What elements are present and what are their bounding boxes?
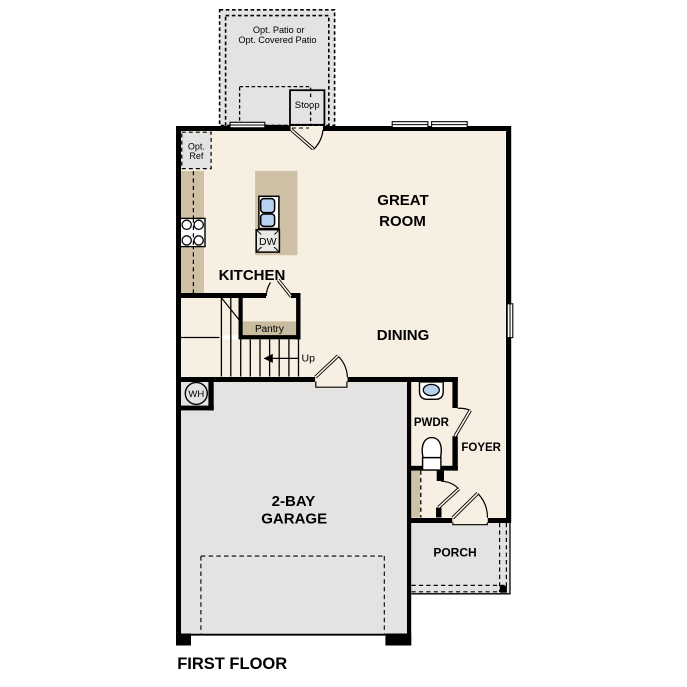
svg-text:GREAT: GREAT <box>377 192 428 209</box>
svg-text:Opt. Covered Patio: Opt. Covered Patio <box>238 35 316 45</box>
svg-text:DINING: DINING <box>377 327 430 344</box>
svg-text:PORCH: PORCH <box>433 546 476 560</box>
svg-text:KITCHEN: KITCHEN <box>219 267 286 284</box>
svg-text:Pantry: Pantry <box>255 324 284 335</box>
svg-text:ROOM: ROOM <box>379 213 426 230</box>
svg-text:Stoop: Stoop <box>295 100 320 111</box>
svg-text:GARAGE: GARAGE <box>261 510 327 527</box>
svg-text:PWDR: PWDR <box>414 417 450 429</box>
svg-text:FIRST FLOOR: FIRST FLOOR <box>177 655 287 673</box>
svg-text:FOYER: FOYER <box>461 442 501 454</box>
svg-text:WH: WH <box>188 389 204 400</box>
svg-text:Ref: Ref <box>189 151 204 161</box>
svg-text:2-BAY: 2-BAY <box>272 493 316 510</box>
svg-text:Opt.: Opt. <box>188 141 205 151</box>
svg-text:Opt. Patio or: Opt. Patio or <box>253 25 305 35</box>
svg-text:Up: Up <box>302 353 316 365</box>
svg-text:DW: DW <box>259 236 277 248</box>
